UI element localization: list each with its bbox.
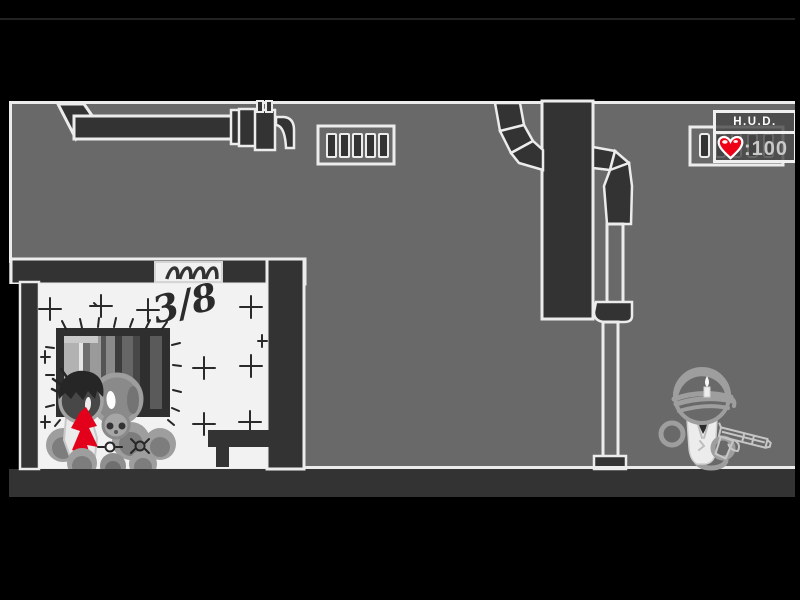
screen-border-right [795, 0, 800, 600]
health-value: :100 [744, 134, 788, 163]
hud-panel: H.U.D. :100 [713, 110, 797, 163]
ceiling-line [9, 101, 795, 104]
room-right-pillar [267, 259, 304, 469]
hud-health-row: :100 [716, 134, 794, 163]
window-hairline [0, 18, 800, 20]
skull-head [103, 412, 129, 438]
hud-title: H.U.D. [716, 113, 794, 134]
game-canvas[interactable]: 3/8 H.U.D. :100 [0, 0, 800, 600]
wall-vent-top-icon [318, 126, 394, 164]
heart-icon [717, 135, 744, 161]
shoulder [661, 423, 683, 445]
game-scene [0, 0, 800, 600]
room-left-pillar [20, 282, 39, 469]
floor-band [9, 469, 795, 497]
left-wall-line [9, 101, 12, 263]
